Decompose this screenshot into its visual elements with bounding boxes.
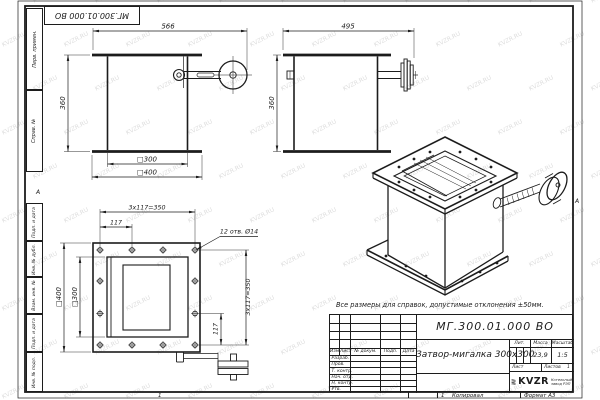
zone-mark-right: А	[575, 198, 579, 205]
bolt-holes	[98, 248, 198, 348]
bottom-zone-1: 1	[158, 393, 162, 399]
front-view: 566 360 □300 □400	[59, 23, 252, 181]
tb-role-prov: Пров.	[332, 362, 345, 367]
dim-plan-col-pitch: 3x117=350	[245, 278, 252, 315]
iso-top-bolts	[398, 151, 493, 199]
margin-cell-inv-dubl: Инв. № дубл.	[26, 241, 43, 277]
dim-plan-row-pitch: 3x117=350	[128, 205, 165, 212]
dim-front-total: 566	[161, 23, 175, 31]
drawing-sheet: KVZR.RUKVZR.RUKVZR.RUKVZR.RUKVZR.RUKVZR.…	[0, 0, 600, 400]
isometric-view	[367, 137, 571, 295]
tb-role-tkontr: Т. контр.	[332, 369, 353, 374]
tb-scale-value: 1:5	[551, 351, 574, 359]
plan-view: 3x117=350 117 12 отв. Ø14 □400 □300 3x11…	[55, 205, 258, 381]
bottom-divider	[408, 392, 409, 398]
tb-sheets-value: 1	[567, 365, 570, 370]
tb-role-utv: Утв.	[332, 387, 341, 392]
tb-mass-label: Масса	[530, 341, 551, 346]
tb-role-nachotd: Нач. отд.	[332, 375, 354, 380]
margin-cell-perv-primen: Перв. примен.	[26, 8, 43, 90]
plan-counterweight	[177, 353, 249, 381]
format-label: Формат А3	[524, 393, 555, 399]
dim-plan-inner: □300	[71, 286, 79, 307]
zone-mark-left: А	[36, 189, 40, 196]
tb-col-list: Лист	[340, 349, 350, 354]
title-block: Изм. Лист № докум. Подп. Дата Разраб. Пр…	[329, 314, 573, 392]
dim-plan-outer: □400	[55, 286, 63, 307]
tb-part-name: Затвор-мигалка 300х300	[416, 350, 509, 360]
tb-lit-label: Лит.	[509, 341, 530, 346]
tb-scale-label: Масштаб	[551, 341, 574, 346]
dim-plan-holes: 12 отв. Ø14	[220, 228, 258, 236]
tb-designation: МГ.300.01.000 ВО	[416, 320, 574, 333]
side-view: 495 360	[268, 23, 418, 152]
tb-col-podp: Подп.	[381, 349, 400, 354]
tb-mass-value: 23,9	[530, 351, 551, 359]
bottom-divider	[437, 392, 438, 398]
margin-cell-inv-podl: Инв. № подл.	[26, 352, 43, 392]
dim-front-height: 360	[59, 96, 67, 110]
tb-sheet-label: Лист	[512, 365, 523, 370]
top-designation-text: МГ.300.01.000 ВО	[55, 11, 129, 20]
company-logo-text: KVZR	[518, 376, 549, 387]
company-cell: KVZR Котельный завод РЭП	[511, 372, 572, 391]
margin-cell-sprav-no: Справ. №	[26, 90, 43, 172]
dim-front-outer: □400	[137, 169, 158, 177]
bottom-zone-2: 1	[441, 393, 445, 399]
margin-cell-podp-data-1: Подп. и дата	[26, 203, 43, 241]
dim-side-total: 495	[341, 23, 355, 31]
tb-role-razrab: Разраб.	[332, 356, 350, 361]
margin-cell-vzam-inv: Взам. инв. №	[26, 277, 43, 314]
top-designation-box: МГ.300.01.000 ВО	[44, 6, 140, 25]
tb-role-nkontr: Н. контр.	[332, 381, 354, 386]
iso-arm-threads	[507, 188, 534, 206]
copied-label: Копировал	[452, 393, 483, 399]
tb-sheets-label: Листов	[544, 365, 561, 370]
general-note: Все размеры для справок, допустимые откл…	[336, 301, 544, 309]
dim-side-height: 360	[268, 96, 276, 110]
dim-plan-pitch-first: 117	[110, 220, 122, 227]
tb-col-izm: Изм.	[330, 349, 339, 354]
dim-front-inner: □300	[137, 156, 158, 164]
company-name: Котельный завод РЭП	[551, 378, 572, 386]
tb-col-doc: № докум.	[351, 349, 380, 354]
bottom-divider	[520, 392, 521, 398]
spring-icon	[511, 375, 516, 389]
dim-plan-pitch-last: 117	[213, 323, 220, 335]
margin-cell-podp-data-2: Подп. и дата	[26, 314, 43, 352]
tb-col-data: Дата	[401, 349, 416, 354]
